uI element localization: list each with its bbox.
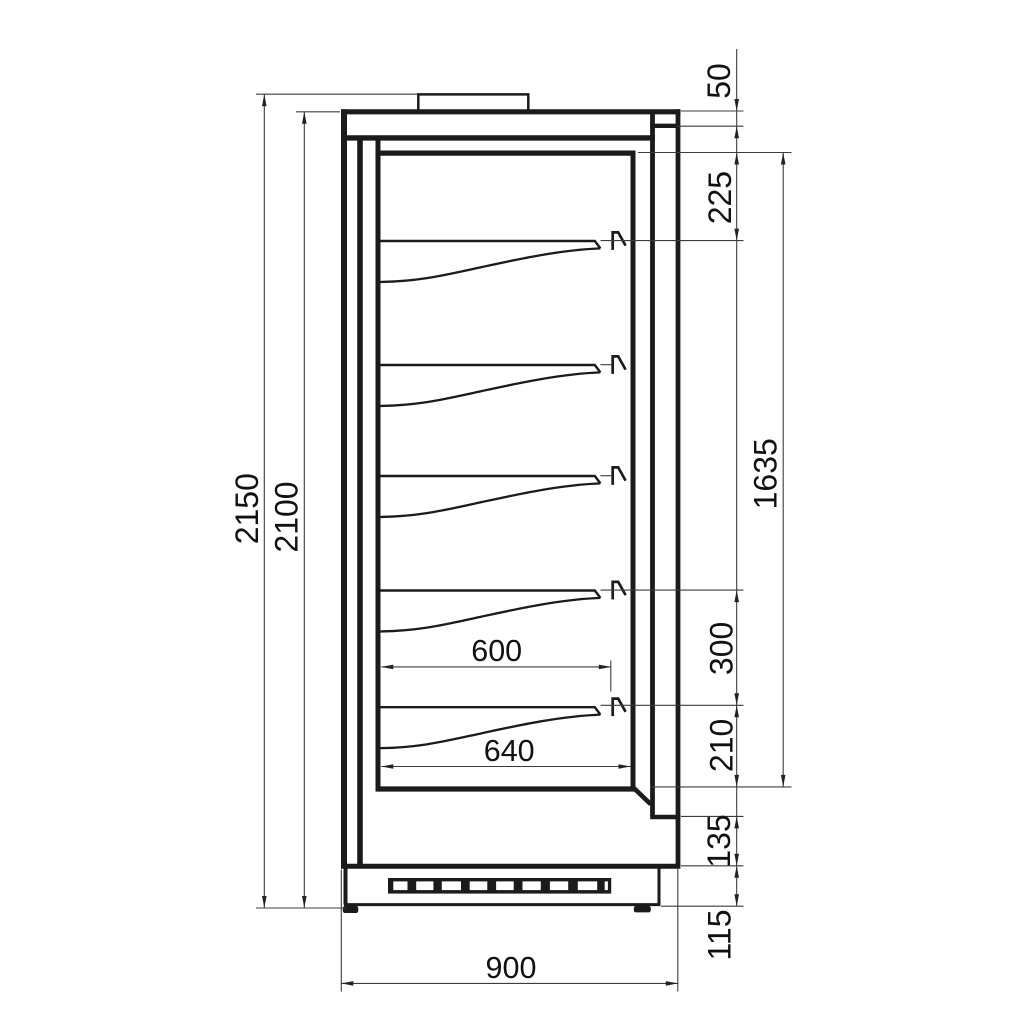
svg-text:115: 115 bbox=[701, 909, 737, 960]
svg-text:210: 210 bbox=[703, 719, 739, 772]
svg-text:2100: 2100 bbox=[269, 481, 305, 552]
svg-text:600: 600 bbox=[471, 634, 522, 668]
svg-text:50: 50 bbox=[701, 63, 737, 99]
svg-text:2150: 2150 bbox=[229, 473, 265, 544]
svg-text:1635: 1635 bbox=[747, 438, 783, 509]
svg-text:300: 300 bbox=[703, 622, 739, 675]
svg-text:900: 900 bbox=[486, 951, 537, 985]
svg-text:225: 225 bbox=[702, 171, 738, 224]
svg-text:135: 135 bbox=[701, 814, 737, 867]
svg-text:640: 640 bbox=[484, 734, 535, 768]
